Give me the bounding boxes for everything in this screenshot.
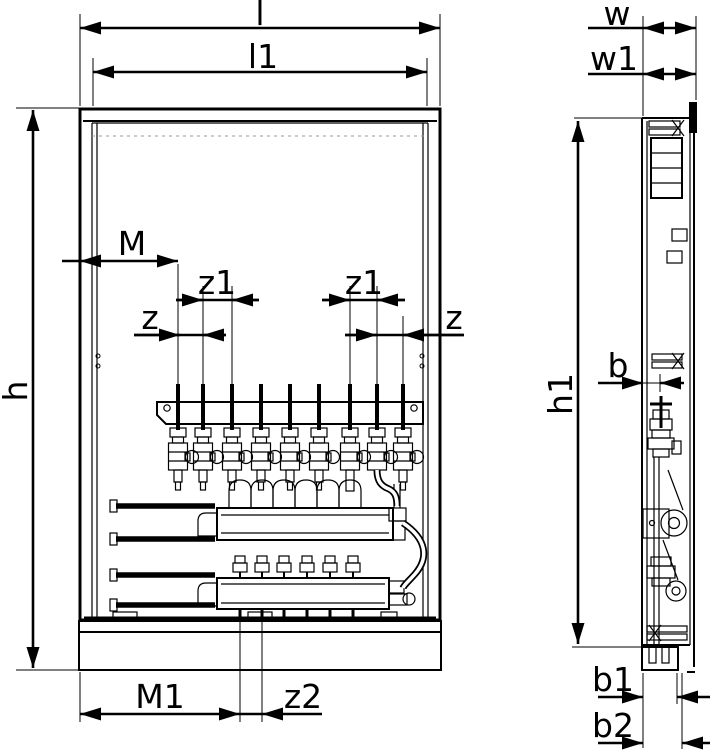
dim-label-l1: l1	[248, 37, 278, 76]
cabinet-frame	[80, 109, 440, 620]
dim-label-z1: z1	[345, 263, 383, 302]
dimension-h1: h1	[541, 121, 580, 644]
dimension-w1: w1	[588, 39, 696, 78]
dim-label-b1: b1	[592, 660, 634, 699]
dimension-h: h	[0, 110, 35, 668]
dim-label-z1: z1	[198, 263, 236, 302]
dimension-l1: l1	[93, 37, 427, 76]
dim-label-M1: M1	[135, 677, 184, 716]
valve-row	[169, 384, 424, 491]
front-view: l l1 h M z1 z	[0, 0, 464, 722]
dimension-b1: b1	[592, 660, 710, 699]
dimension-z1-left: z1	[176, 263, 259, 302]
manifold-elbow	[198, 513, 217, 536]
dimension-w: w	[588, 0, 696, 33]
manifold-cabinet-drawing: l l1 h M z1 z	[0, 0, 710, 753]
dim-label-M: M	[118, 224, 146, 263]
dim-label-w: w	[604, 0, 631, 33]
wall-hook	[689, 102, 697, 133]
dimension-M1: M1	[80, 677, 240, 716]
dimension-z1-right: z1	[322, 263, 405, 302]
side-view: w w1 h1 b b1 b2	[541, 0, 710, 749]
dimension-b2: b2	[592, 706, 710, 745]
dim-label-w1: w1	[590, 39, 638, 78]
cabinet-base	[79, 612, 441, 670]
dimension-z-right: z	[345, 298, 464, 337]
dimension-z2: z2	[240, 677, 322, 716]
dim-label-b2: b2	[592, 706, 634, 745]
dim-label-z: z	[141, 298, 158, 337]
dim-label-h1: h1	[541, 373, 580, 415]
dim-label-z: z	[445, 298, 462, 337]
dimension-l: l	[80, 0, 440, 33]
technical-drawing-canvas: l l1 h M z1 z	[0, 0, 710, 753]
dim-label-l: l	[255, 0, 264, 33]
dim-label-z2: z2	[284, 677, 322, 716]
dim-label-h: h	[0, 381, 35, 402]
dim-label-b: b	[608, 346, 629, 385]
dimension-z-left: z	[134, 298, 226, 337]
manifold-lower	[110, 556, 415, 618]
